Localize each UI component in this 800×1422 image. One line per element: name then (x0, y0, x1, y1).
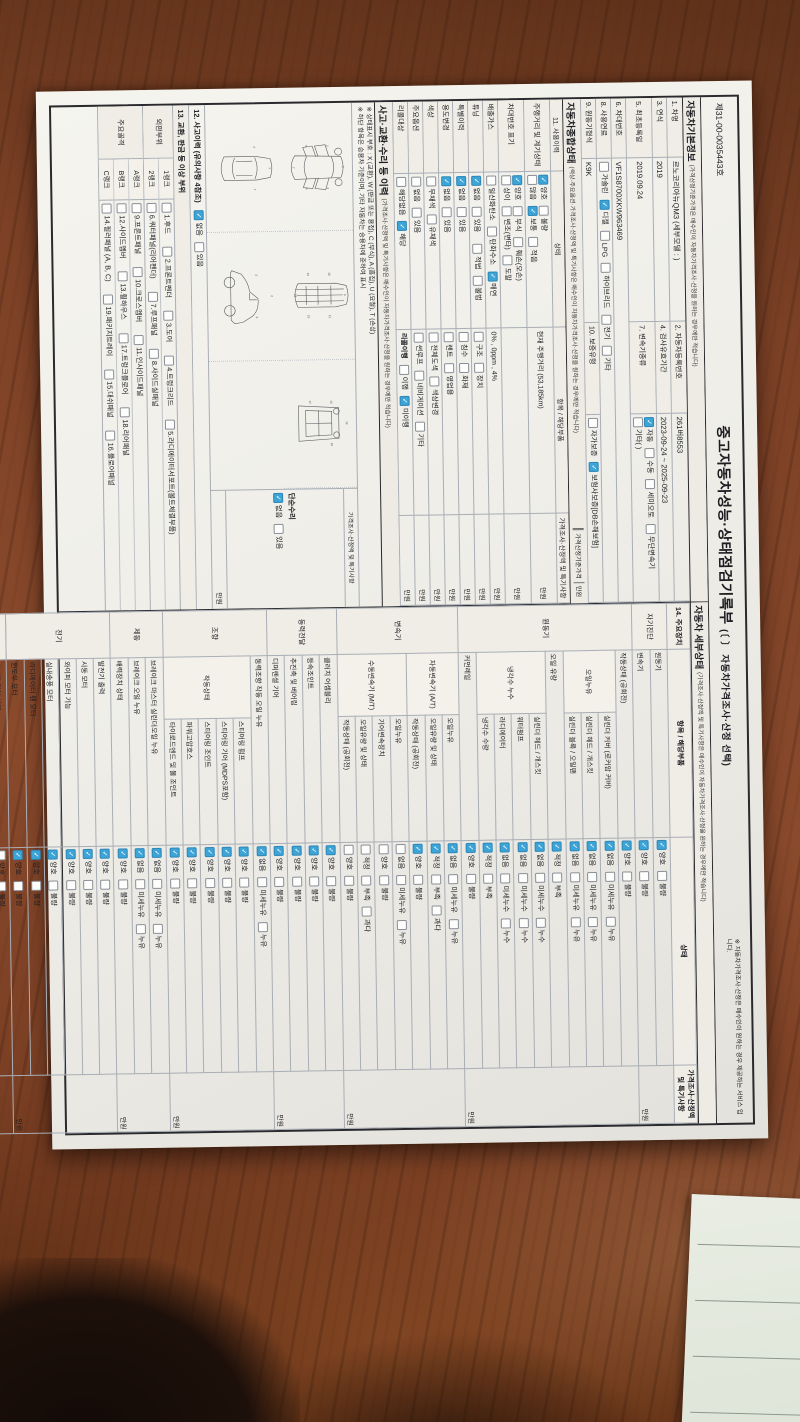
checkbox-unchecked[interactable] (501, 918, 511, 928)
option: 있음 (412, 208, 422, 233)
item-cell: 0% , 0ppm , 4% (486, 328, 504, 514)
checkbox-checked[interactable]: ✓ (239, 846, 249, 856)
option-label: 없음 (396, 856, 406, 869)
checkbox-checked[interactable]: ✓ (604, 841, 614, 851)
option-label: 자가보증 (588, 430, 598, 457)
panel-item-label: 9.프론트패널 (132, 215, 143, 254)
checkbox-unchecked[interactable] (378, 844, 388, 854)
checkbox-unchecked[interactable] (162, 247, 172, 257)
option-label: 불량 (188, 890, 198, 903)
checkbox-unchecked[interactable] (527, 175, 537, 185)
detail-state-cell: ✓양호불량 (287, 843, 308, 1071)
option-label: 미세누수 (518, 885, 528, 912)
option-label: 부족 (483, 886, 493, 899)
checkbox-unchecked[interactable] (449, 919, 459, 929)
checkbox-checked[interactable]: ✓ (193, 211, 203, 221)
checkbox-unchecked[interactable] (136, 924, 146, 934)
checkbox-unchecked[interactable] (483, 874, 493, 884)
svg-text:16: 16 (329, 443, 333, 447)
checkbox-checked[interactable]: ✓ (204, 847, 214, 857)
checkbox-unchecked[interactable] (396, 844, 406, 854)
basic-info-table: 1. 차명르노코리아뉴QM3 (세부모델 : )2. 자동차등록번호261버85… (580, 98, 690, 604)
checkbox-unchecked[interactable] (646, 524, 656, 534)
option: 불량 (539, 206, 549, 231)
svg-text:12: 12 (306, 273, 310, 277)
checkbox-checked[interactable]: ✓ (587, 841, 597, 851)
checkbox-unchecked[interactable] (645, 479, 655, 489)
option-label: 양호 (100, 861, 110, 874)
checkbox-unchecked[interactable] (501, 175, 511, 185)
option: 화재 (459, 363, 469, 388)
option-label: 불량 (0, 893, 7, 906)
checkbox-checked[interactable]: ✓ (448, 843, 458, 853)
checkbox-unchecked[interactable] (600, 231, 610, 241)
checkbox-unchecked[interactable] (473, 275, 483, 285)
checkbox-unchecked[interactable] (100, 880, 110, 890)
device-group-cell: 자기진단 (632, 603, 667, 650)
checkbox-checked[interactable]: ✓ (291, 846, 301, 856)
checkbox-unchecked[interactable] (118, 880, 128, 890)
checkbox-unchecked[interactable] (205, 878, 215, 888)
checkbox-unchecked[interactable] (396, 875, 406, 885)
sub-group-cell: 자동변속기 (A/T) (406, 653, 459, 716)
checkbox-unchecked[interactable] (633, 417, 643, 427)
checkbox-unchecked[interactable] (639, 871, 649, 881)
panel-item-label: 4.트렁크리드 (164, 367, 175, 406)
option-label: 있음 (442, 219, 452, 232)
checkbox-unchecked[interactable] (502, 206, 512, 216)
option: 누유 (136, 924, 146, 949)
panel-item: 11.인사이드패널 (134, 335, 145, 396)
option-label: 불량 (83, 892, 93, 905)
field-label: 5. 최초등록일 (625, 98, 652, 158)
svg-text:1: 1 (267, 167, 271, 169)
checkbox-unchecked[interactable] (31, 881, 41, 891)
usage-history-label: 차대번호 표기 (497, 100, 524, 172)
checkbox-unchecked[interactable] (605, 872, 615, 882)
checkbox-checked[interactable]: ✓ (326, 845, 336, 855)
checkbox-unchecked[interactable] (605, 916, 615, 926)
checkbox-checked[interactable]: ✓ (256, 846, 266, 856)
detail-state-cell: ✓적정부족 (548, 839, 569, 1067)
item-cell: 썬루프네비게이션기타 (411, 330, 429, 516)
checkbox-unchecked[interactable] (486, 175, 496, 185)
option: 누유 (153, 923, 163, 948)
checkbox-unchecked[interactable] (362, 907, 372, 917)
checkbox-unchecked[interactable] (429, 332, 439, 342)
checkbox-unchecked[interactable] (474, 363, 484, 373)
checkbox-unchecked[interactable] (134, 335, 144, 345)
checkbox-checked[interactable]: ✓ (569, 841, 579, 851)
checkbox-checked[interactable]: ✓ (517, 842, 527, 852)
checkbox-unchecked[interactable] (83, 880, 93, 890)
part-cell: 작동상태 (공회전) (615, 650, 635, 838)
field-value: 르노코리아뉴QM3 (세부모델 : ) (667, 158, 686, 322)
car-rear-frame-diagram: 12131617 (286, 377, 353, 470)
checkbox-unchecked[interactable] (657, 871, 667, 881)
checkbox-checked[interactable]: ✓ (30, 850, 40, 860)
checkbox-checked[interactable]: ✓ (639, 840, 649, 850)
option: 불량 (100, 880, 110, 905)
checkbox-checked[interactable]: ✓ (65, 849, 75, 859)
checkbox-unchecked[interactable] (472, 207, 482, 217)
option: ✓양호 (274, 846, 284, 871)
detail-price-cell: 만원 (0, 1075, 14, 1134)
option-label: 해당없음 (396, 189, 406, 216)
checkbox-unchecked[interactable] (415, 422, 425, 432)
option: ✓양호 (13, 850, 23, 875)
wooden-desk-background: 제31-00-0035443호 중고자동차성능·상태점검기록부 (〔 〕 자동차… (0, 0, 800, 1422)
checkbox-checked[interactable]: ✓ (600, 200, 610, 210)
checkbox-checked[interactable]: ✓ (482, 843, 492, 853)
part-cell: 브레이크 오일 누유 (128, 658, 148, 846)
option-label: 누수 (536, 929, 546, 942)
checkbox-unchecked[interactable] (487, 227, 497, 237)
checkbox-unchecked[interactable] (472, 244, 482, 254)
option-label: 디젤 (600, 212, 610, 225)
checkbox-unchecked[interactable] (412, 208, 422, 218)
checkbox-unchecked[interactable] (411, 177, 421, 187)
checkbox-unchecked[interactable] (518, 873, 528, 883)
option: 렌트 (444, 332, 454, 357)
checkbox-checked[interactable]: ✓ (413, 844, 423, 854)
checkbox-unchecked[interactable] (431, 906, 441, 916)
panel-item: 8.사이드실패널 (149, 349, 160, 407)
checkbox-unchecked[interactable] (466, 874, 476, 884)
checkbox-unchecked[interactable] (571, 917, 581, 927)
checkbox-unchecked[interactable] (66, 880, 76, 890)
option: 불법 (473, 275, 483, 300)
part-cell: 등속조인트 (302, 655, 322, 843)
option: ✓양호 (512, 175, 522, 200)
checkbox-unchecked[interactable] (149, 349, 159, 359)
option-label: 없음 (471, 188, 481, 201)
checkbox-unchecked[interactable] (164, 355, 174, 365)
checkbox-unchecked[interactable] (133, 267, 143, 277)
checkbox-checked[interactable]: ✓ (83, 849, 93, 859)
option-label: 부족 (431, 887, 441, 900)
option-label: 양호 (326, 857, 336, 870)
option: 가솔린 (599, 162, 609, 194)
detail-state-cell: ✓양호불량 (218, 844, 239, 1072)
checkbox-unchecked[interactable] (502, 256, 512, 266)
checkbox-unchecked[interactable] (426, 176, 436, 186)
checkbox-checked[interactable]: ✓ (273, 493, 283, 503)
checkbox-unchecked[interactable] (553, 873, 563, 883)
option-label: 불량 (379, 887, 389, 900)
option-label: 양호 (31, 862, 41, 875)
option-label: 적정 (552, 853, 562, 866)
checkbox-unchecked[interactable] (103, 295, 113, 305)
checkbox-unchecked[interactable] (273, 524, 283, 534)
checkbox-checked[interactable]: ✓ (152, 848, 162, 858)
state-cell: ✓양호부식훼손(오손)상이변조(변타)도말 (498, 172, 526, 328)
checkbox-unchecked[interactable] (170, 879, 180, 889)
svg-text:4: 4 (252, 146, 256, 148)
checkbox-unchecked[interactable] (102, 204, 112, 214)
part-cell: 라디에이터 팬 모터 (24, 659, 44, 847)
checkbox-unchecked[interactable] (500, 874, 510, 884)
checkbox-checked[interactable]: ✓ (656, 840, 666, 850)
checkbox-unchecked[interactable] (135, 879, 145, 889)
part-cell: 작동상태 (공회전) (338, 717, 357, 843)
option-label: 있음 (194, 254, 204, 267)
checkbox-unchecked[interactable] (396, 177, 406, 187)
checkbox-unchecked[interactable] (459, 363, 469, 373)
checkbox-unchecked[interactable] (343, 845, 353, 855)
part-cell: 스티어링 펌프 (233, 718, 252, 844)
checkbox-unchecked[interactable] (413, 875, 423, 885)
panel-item: 3.도어 (163, 311, 173, 342)
option-label: 누유 (588, 929, 598, 942)
option-label: 양호 (657, 852, 667, 865)
panel-item: 13.휠하우스 (118, 271, 129, 320)
checkbox-unchecked[interactable] (258, 922, 268, 932)
checkbox-unchecked[interactable] (13, 881, 23, 891)
checkbox-checked[interactable]: ✓ (48, 849, 58, 859)
field-value: 2023-09-24 ~ 2025-09-23 (656, 414, 674, 602)
option-label: 도말 (503, 268, 513, 281)
checkbox-checked[interactable]: ✓ (135, 848, 145, 858)
checkbox-unchecked[interactable] (588, 917, 598, 927)
option: 미세누유 (587, 872, 598, 911)
option-label: 불량 (327, 888, 337, 901)
checkbox-unchecked[interactable] (459, 332, 469, 342)
checkbox-unchecked[interactable] (153, 879, 163, 889)
detail-state-cell: ✓없음미세누유누유 (148, 845, 169, 1073)
checkbox-checked[interactable]: ✓ (397, 221, 407, 231)
checkbox-unchecked[interactable] (361, 876, 371, 886)
checkbox-unchecked[interactable] (448, 874, 458, 884)
item-value: 현재 주행거리 (53,185km) (535, 331, 546, 409)
checkbox-unchecked[interactable] (587, 872, 597, 882)
checkbox-checked[interactable]: ✓ (552, 841, 562, 851)
checkbox-unchecked[interactable] (117, 203, 127, 213)
checkbox-unchecked[interactable] (326, 876, 336, 886)
checkbox-unchecked[interactable] (104, 369, 114, 379)
svg-text:3: 3 (254, 274, 258, 276)
checkbox-unchecked[interactable] (539, 206, 549, 216)
checkbox-unchecked[interactable] (535, 873, 545, 883)
option-label: 불량 (657, 883, 667, 896)
checkbox-unchecked[interactable] (513, 206, 523, 216)
checkbox-checked[interactable]: ✓ (589, 462, 599, 472)
panel-item: 1.후드 (162, 203, 172, 234)
option: 있음 (457, 207, 467, 232)
panel-item-label: 2.프론트펜더 (162, 259, 173, 298)
checkbox-unchecked[interactable] (361, 844, 371, 854)
option: 변조(변타) (502, 206, 513, 249)
checkbox-unchecked[interactable] (309, 877, 319, 887)
checkbox-unchecked[interactable] (599, 162, 609, 172)
option-label: 없음 (193, 223, 203, 236)
option: 미세누수 (518, 873, 529, 912)
checkbox-unchecked[interactable] (187, 878, 197, 888)
checkbox-checked[interactable]: ✓ (488, 271, 498, 281)
checkbox-unchecked[interactable] (162, 203, 172, 213)
checkbox-unchecked[interactable] (397, 920, 407, 930)
checkbox-checked[interactable]: ✓ (465, 843, 475, 853)
option-label: 불량 (170, 891, 180, 904)
checkbox-checked[interactable]: ✓ (644, 417, 654, 427)
option: 누수 (518, 918, 528, 943)
checkbox-checked[interactable]: ✓ (535, 842, 545, 852)
option: 전체도색 (429, 332, 440, 371)
option-label: 썬루프 (414, 345, 424, 365)
checkbox-unchecked[interactable] (153, 923, 163, 933)
rank-label: C랭크 (99, 159, 114, 200)
detail-state-cell: ✓양호불량 (96, 846, 117, 1074)
price-cell: 만원 (443, 515, 459, 605)
checkbox-unchecked[interactable] (601, 314, 611, 324)
detail-note: (가격조사·산정액 및 특기사항은 매수인이 자동차가격조사·산정을 원하는 경… (696, 672, 709, 902)
checkbox-checked[interactable]: ✓ (100, 849, 110, 859)
checkbox-unchecked[interactable] (431, 875, 441, 885)
option-label: LPG (601, 243, 610, 258)
checkbox-checked[interactable]: ✓ (170, 847, 180, 857)
detail-state-cell: ✓양호불량 (201, 844, 222, 1072)
checkbox-unchecked[interactable] (292, 877, 302, 887)
checkbox-unchecked[interactable] (165, 419, 175, 429)
option: ✓적정 (430, 843, 440, 868)
checkbox-unchecked[interactable] (601, 263, 611, 273)
option-label: 없음 (448, 855, 458, 868)
option-label: 많음 (527, 187, 537, 200)
option: 없음 (396, 844, 406, 869)
option-label: 적정 (431, 855, 441, 868)
option-label: 변조(변타) (502, 218, 512, 249)
part-cell: 변속기 (632, 650, 652, 838)
checkbox-checked[interactable]: ✓ (622, 840, 632, 850)
panel-item: 18.리어패널 (120, 407, 131, 456)
checkbox-unchecked[interactable] (622, 872, 632, 882)
checkbox-unchecked[interactable] (444, 332, 454, 342)
panel-item: 16.플로어패널 (105, 431, 116, 486)
checkbox-unchecked[interactable] (194, 242, 204, 252)
checkbox-unchecked[interactable] (444, 363, 454, 373)
option: 기타( ) (633, 417, 644, 449)
checkbox-checked[interactable]: ✓ (400, 396, 410, 406)
option-label: 미세누유 (448, 886, 458, 913)
checkbox-unchecked[interactable] (105, 431, 115, 441)
option: ✓양호 (538, 175, 548, 200)
option: 불량 (344, 876, 354, 901)
option-label: 가솔린 (599, 174, 609, 194)
checkbox-unchecked[interactable] (0, 881, 6, 891)
option: 부식 (513, 206, 523, 231)
checkbox-unchecked[interactable] (147, 203, 157, 213)
checkbox-unchecked[interactable] (518, 918, 528, 928)
checkbox-unchecked[interactable] (414, 370, 424, 380)
checkbox-unchecked[interactable] (429, 377, 439, 387)
car-top-open-diagram: 123567 (282, 120, 349, 213)
checkbox-unchecked[interactable] (644, 448, 654, 458)
car-side-diagram: 236 (211, 250, 278, 343)
option: 불량 (48, 881, 58, 906)
option: 누유 (258, 922, 268, 947)
checkbox-unchecked[interactable] (474, 332, 484, 342)
option-label: 해당 (397, 233, 407, 246)
option-label: 불량 (240, 890, 250, 903)
checkbox-checked[interactable]: ✓ (309, 845, 319, 855)
checkbox-checked[interactable]: ✓ (441, 176, 451, 186)
option: 적법 (472, 244, 482, 269)
option: ✓미이행 (400, 396, 410, 428)
option-label: 탄화수소 (487, 239, 497, 266)
checkbox-unchecked[interactable] (148, 291, 158, 301)
checkbox-unchecked[interactable] (120, 407, 130, 417)
checkbox-unchecked[interactable] (240, 878, 250, 888)
checkbox-unchecked[interactable] (274, 877, 284, 887)
checkbox-checked[interactable]: ✓ (187, 847, 197, 857)
option-label: 미세누유 (153, 891, 163, 918)
option-label: 양호 (378, 856, 388, 869)
checkbox-unchecked[interactable] (0, 850, 6, 860)
checkbox-unchecked[interactable] (48, 881, 58, 891)
checkbox-unchecked[interactable] (132, 203, 142, 213)
checkbox-checked[interactable]: ✓ (528, 206, 538, 216)
checkbox-unchecked[interactable] (528, 237, 538, 247)
checkbox-checked[interactable]: ✓ (500, 842, 510, 852)
checkbox-unchecked[interactable] (536, 917, 546, 927)
panel-item: 6.쿼터패널(리어펜더) (147, 203, 158, 279)
checkbox-unchecked[interactable] (414, 333, 424, 343)
checkbox-unchecked[interactable] (119, 333, 129, 343)
checkbox-checked[interactable]: ✓ (456, 176, 466, 186)
option-label: 장치 (474, 375, 484, 388)
checkbox-unchecked[interactable] (163, 311, 173, 321)
checkbox-unchecked[interactable] (344, 876, 354, 886)
detail-state-cell: ✓없음미세누수누수 (531, 839, 552, 1067)
checkbox-unchecked[interactable] (570, 872, 580, 882)
option: 누유 (397, 920, 407, 945)
detail-state-cell: ✓양호불량 (44, 847, 65, 1075)
checkbox-checked[interactable]: ✓ (274, 846, 284, 856)
checkbox-unchecked[interactable] (457, 207, 467, 217)
state-cell: ✓없음있음 (438, 173, 455, 329)
state-cell: ✓없음있음적법불법 (468, 173, 485, 329)
option-label: 훼손(오손) (513, 250, 523, 281)
item-cell: 현재 주행거리 (53,185km) (527, 328, 556, 514)
option-label: 양호 (538, 187, 548, 200)
checkbox-unchecked[interactable] (513, 238, 523, 248)
option: 누수 (536, 917, 546, 942)
checkbox-checked[interactable]: ✓ (512, 175, 522, 185)
checkbox-checked[interactable]: ✓ (117, 848, 127, 858)
checkbox-unchecked[interactable] (588, 418, 598, 428)
checkbox-unchecked[interactable] (427, 214, 437, 224)
detail-state-cell: ✓없음미세누유누유 (253, 844, 274, 1072)
checkbox-checked[interactable]: ✓ (13, 850, 23, 860)
checkbox-unchecked[interactable] (399, 365, 409, 375)
checkbox-unchecked[interactable] (602, 345, 612, 355)
checkbox-checked[interactable]: ✓ (222, 847, 232, 857)
device-group-cell: 변속기 (336, 607, 458, 655)
checkbox-checked[interactable]: ✓ (430, 843, 440, 853)
checkbox-unchecked[interactable] (257, 877, 267, 887)
checkbox-unchecked[interactable] (379, 875, 389, 885)
checkbox-unchecked[interactable] (118, 271, 128, 281)
svg-text:11: 11 (327, 315, 331, 318)
detail-state-cell: ✓없음미세누유누유 (131, 845, 152, 1073)
checkbox-unchecked[interactable] (442, 207, 452, 217)
option-label: 매연 (488, 283, 498, 296)
checkbox-checked[interactable]: ✓ (471, 176, 481, 186)
checkbox-checked[interactable]: ✓ (538, 175, 548, 185)
detail-title: 자동차 세부상태 (692, 605, 707, 669)
checkbox-unchecked[interactable] (222, 878, 232, 888)
panel-item-label: 10.크로스멤버 (133, 279, 144, 322)
